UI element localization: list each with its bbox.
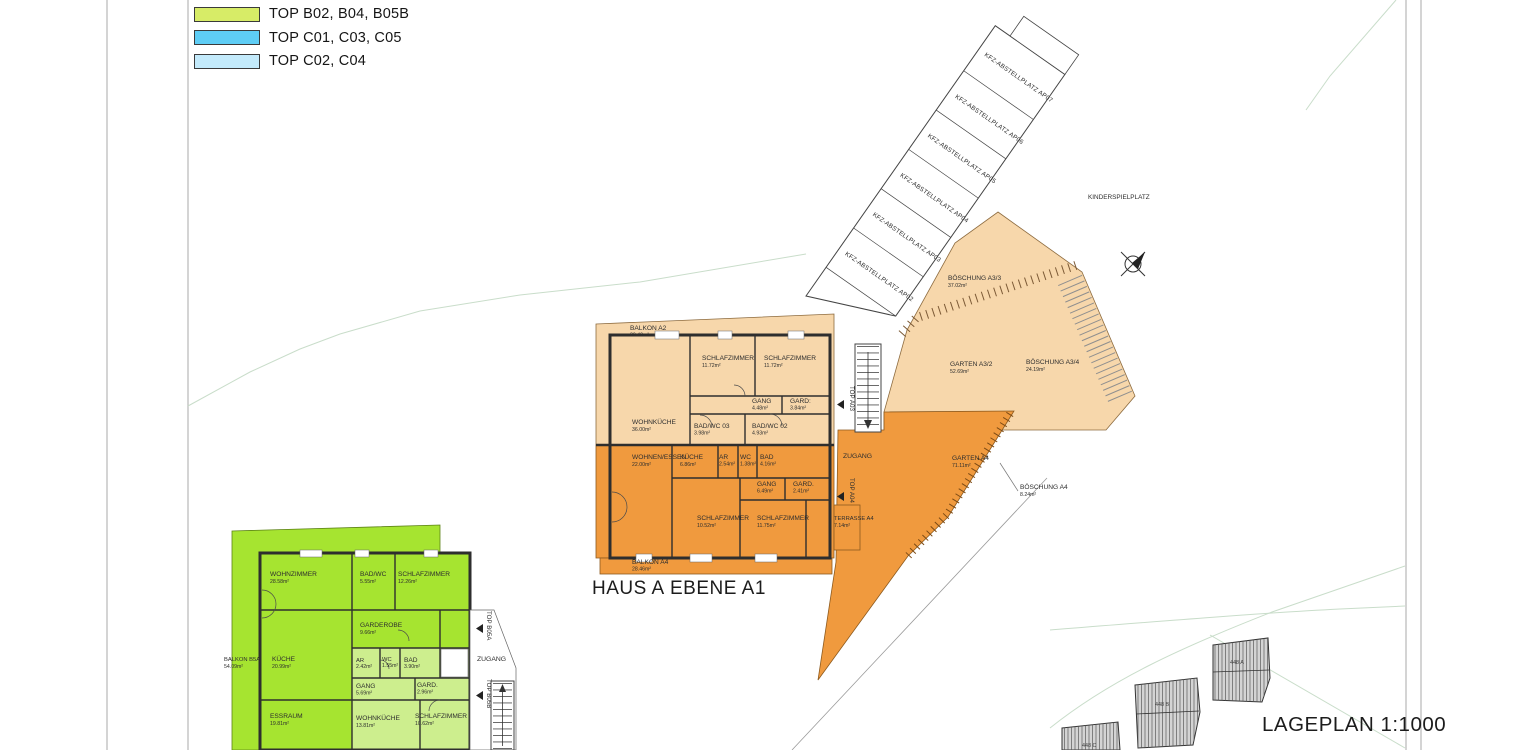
room-label: GARD. <box>793 481 814 488</box>
neighbor-building-label: 448 A <box>1230 660 1244 666</box>
boeschung-a34-label: BÖSCHUNG A3/4 <box>1026 358 1079 366</box>
room-area: 12.26m² <box>398 579 417 585</box>
boeschung-a33-label: BÖSCHUNG A3/3 <box>948 274 1001 282</box>
haus-b-zugang-label: ZUGANG <box>477 656 506 663</box>
balkon-b5a-area: 54.09m² <box>224 664 243 670</box>
room-area: 11.75m² <box>757 523 776 529</box>
terrasse-a4-area: 7.14m² <box>834 523 850 529</box>
top-b05b-label: TOP B05B <box>485 679 492 708</box>
room-area: 3.90m² <box>404 664 420 670</box>
boeschung-a4-leader <box>1000 463 1018 491</box>
room-area: 6.49m² <box>757 489 773 495</box>
room-label: BAD/WC <box>360 571 387 578</box>
haus-a-stairs <box>855 344 881 432</box>
top-a04-label: TOP A04 <box>848 478 855 503</box>
balkon-a2-area: 30.40m² <box>630 333 649 339</box>
legend-swatch-green <box>194 7 260 22</box>
neighbor-building: 448 B <box>1135 678 1200 748</box>
legend-label: TOP B02, B04, B05B <box>269 6 409 22</box>
compass-icon <box>1121 252 1145 276</box>
boeschung-a4-label: BÖSCHUNG A4 <box>1020 483 1068 491</box>
room-area: 2.42m² <box>356 664 372 670</box>
room-label: SCHLAFZIMMER <box>415 713 467 720</box>
room-area: 2.54m² <box>719 462 735 468</box>
haus-b-plan: WOHNZIMMER 28.58m² BAD/WC 5.55m² SCHLAFZ… <box>224 525 516 750</box>
legend-label: TOP C01, C03, C05 <box>269 30 402 46</box>
room-area: 19.81m² <box>270 721 289 727</box>
legend-swatch-lightblue <box>194 54 260 69</box>
room-area: 28.58m² <box>270 579 289 585</box>
terrasse-a4-label: TERRASSE A4 <box>834 516 874 522</box>
balkon-a2-label: BALKON A2 <box>630 325 667 332</box>
siteplan-svg: KFZ-ABSTELLPLATZ AP02 KFZ-ABSTELLPLATZ A… <box>0 0 1527 750</box>
room-label: KÜCHE <box>680 453 704 461</box>
haus-a-title: HAUS A <box>592 578 665 599</box>
room-label: KÜCHE <box>272 655 296 663</box>
room-label: SCHLAFZIMMER <box>697 515 749 522</box>
room-label: WC <box>740 454 751 461</box>
room-label: SCHLAFZIMMER <box>702 355 754 362</box>
legend-row: TOP C01, C03, C05 <box>194 28 409 48</box>
room-area: 20.99m² <box>272 664 291 670</box>
legend: TOP B02, B04, B05B TOP C01, C03, C05 TOP… <box>194 4 409 75</box>
room-label: BAD <box>760 454 774 461</box>
garten-a4-area-label: 71.11m² <box>952 463 971 469</box>
room-area: 2.41m² <box>793 489 809 495</box>
room-area: 11.72m² <box>702 363 721 369</box>
room-area: 10.62m² <box>415 721 434 727</box>
lageplan-title: LAGEPLAN 1:1000 <box>1262 713 1446 736</box>
room-area: 5.69m² <box>356 691 372 697</box>
room-label: GANG <box>356 683 375 690</box>
boeschung-a33-area: 37.02m² <box>948 283 967 289</box>
room-area: 4.48m² <box>752 406 768 412</box>
room-area: 22.00m² <box>632 462 651 468</box>
haus-a-zugang-label: ZUGANG <box>843 453 872 460</box>
neighbor-buildings: 448 A 448 B 448 C <box>1062 638 1270 750</box>
room-label: WOHNKÜCHE <box>632 418 677 426</box>
room-area: 3.84m² <box>790 406 806 412</box>
legend-row: TOP B02, B04, B05B <box>194 4 409 24</box>
room-label: SCHLAFZIMMER <box>757 515 809 522</box>
garten-a4-label: GARTEN A4 <box>952 455 989 462</box>
room-label: GARD: <box>790 398 811 405</box>
room-area: 9.66m² <box>360 630 376 636</box>
room-area: 4.16m² <box>760 462 776 468</box>
room-area: 3.98m² <box>694 431 710 437</box>
room-area: 4.93m² <box>752 431 768 437</box>
boeschung-a4-area: 8.24m² <box>1020 492 1036 498</box>
room-label: ESSRAUM <box>270 713 303 720</box>
room-label: AR <box>719 454 728 461</box>
room-label: BAD/WC 03 <box>694 423 730 430</box>
room-label: BAD/WC 02 <box>752 423 788 430</box>
room-area: 13.81m² <box>356 723 375 729</box>
top-a03-entry-arrow <box>837 400 844 409</box>
room-area: 1.55m² <box>382 663 398 669</box>
room-area: 10.52m² <box>697 523 716 529</box>
kinderspielplatz-label: KINDERSPIELPLATZ <box>1088 194 1150 201</box>
boeschung-a34-area: 24.19m² <box>1026 367 1045 373</box>
room-area: 5.55m² <box>360 579 376 585</box>
room-label: WOHNZIMMER <box>270 571 317 578</box>
room-label: BAD <box>404 657 418 664</box>
legend-row: TOP C02, C04 <box>194 51 409 71</box>
neighbor-building-label: 448 B <box>1155 702 1169 708</box>
room-label: SCHLAFZIMMER <box>764 355 816 362</box>
neighbor-building: 448 A <box>1213 638 1270 702</box>
room-area: 11.72m² <box>764 363 783 369</box>
neighbor-building: 448 C <box>1062 722 1120 750</box>
room-label: GANG <box>757 481 776 488</box>
top-b05a-label: TOP B05A <box>485 611 492 641</box>
haus-a-title-ebene: EBENE A1 <box>670 578 766 599</box>
room-area: 1.38m² <box>740 462 756 468</box>
balkon-a4-label: BALKON A4 <box>632 559 669 566</box>
vestibule-area <box>441 649 468 677</box>
legend-label: TOP C02, C04 <box>269 53 366 69</box>
room-area: 36.00m² <box>632 427 651 433</box>
lageplan-canvas: KFZ-ABSTELLPLATZ AP02 KFZ-ABSTELLPLATZ A… <box>0 0 1527 750</box>
neighbor-building-label: 448 C <box>1082 743 1096 749</box>
legend-swatch-blue <box>194 30 260 45</box>
garten-a32-area-label: 52.69m² <box>950 369 969 375</box>
room-label: GARDEROBE <box>360 622 403 629</box>
top-a03-label: TOP A03 <box>848 386 855 411</box>
balkon-b5a-label: BALKON B5A <box>224 657 260 663</box>
room-area: 2.96m² <box>417 690 433 696</box>
room-label: SCHLAFZIMMER <box>398 571 450 578</box>
haus-b-stairs <box>491 681 514 750</box>
garten-a32-label: GARTEN A3/2 <box>950 361 993 368</box>
balkon-a4-area: 28.46m² <box>632 567 651 573</box>
room-label: WOHNKÜCHE <box>356 714 401 722</box>
room-label: WOHNEN/ESSEN <box>632 454 686 461</box>
room-label: GANG <box>752 398 771 405</box>
room-area: 6.86m² <box>680 462 696 468</box>
room-label: GARD. <box>417 682 438 689</box>
